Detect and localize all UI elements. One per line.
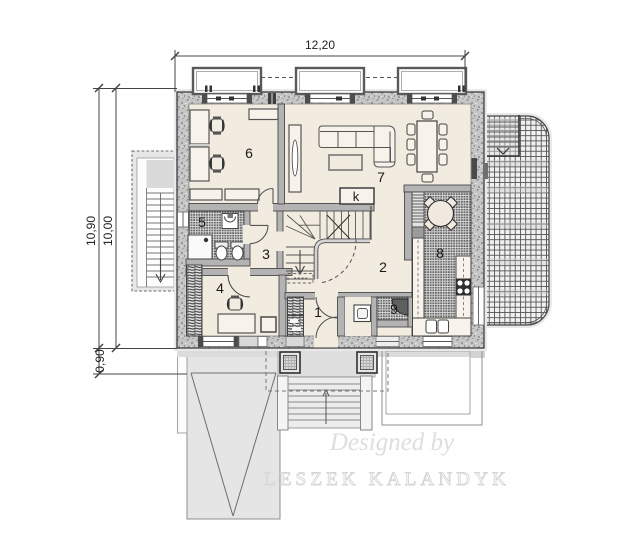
svg-text:0,90: 0,90 (93, 349, 107, 373)
svg-text:12,20: 12,20 (305, 38, 335, 52)
svg-text:Designed by: Designed by (329, 429, 455, 456)
svg-text:8: 8 (436, 245, 444, 261)
svg-text:3: 3 (262, 246, 270, 262)
svg-text:1: 1 (314, 304, 322, 320)
svg-text:9: 9 (390, 301, 398, 317)
svg-text:10,90: 10,90 (84, 216, 98, 246)
svg-text:2: 2 (379, 259, 387, 275)
svg-text:5: 5 (198, 214, 206, 230)
svg-text:k: k (353, 189, 360, 204)
svg-text:10,00: 10,00 (101, 216, 115, 246)
svg-text:LESZEK KALANDYK: LESZEK KALANDYK (264, 469, 510, 490)
svg-text:4: 4 (216, 280, 224, 296)
svg-text:6: 6 (245, 145, 253, 161)
svg-text:7: 7 (377, 169, 385, 185)
